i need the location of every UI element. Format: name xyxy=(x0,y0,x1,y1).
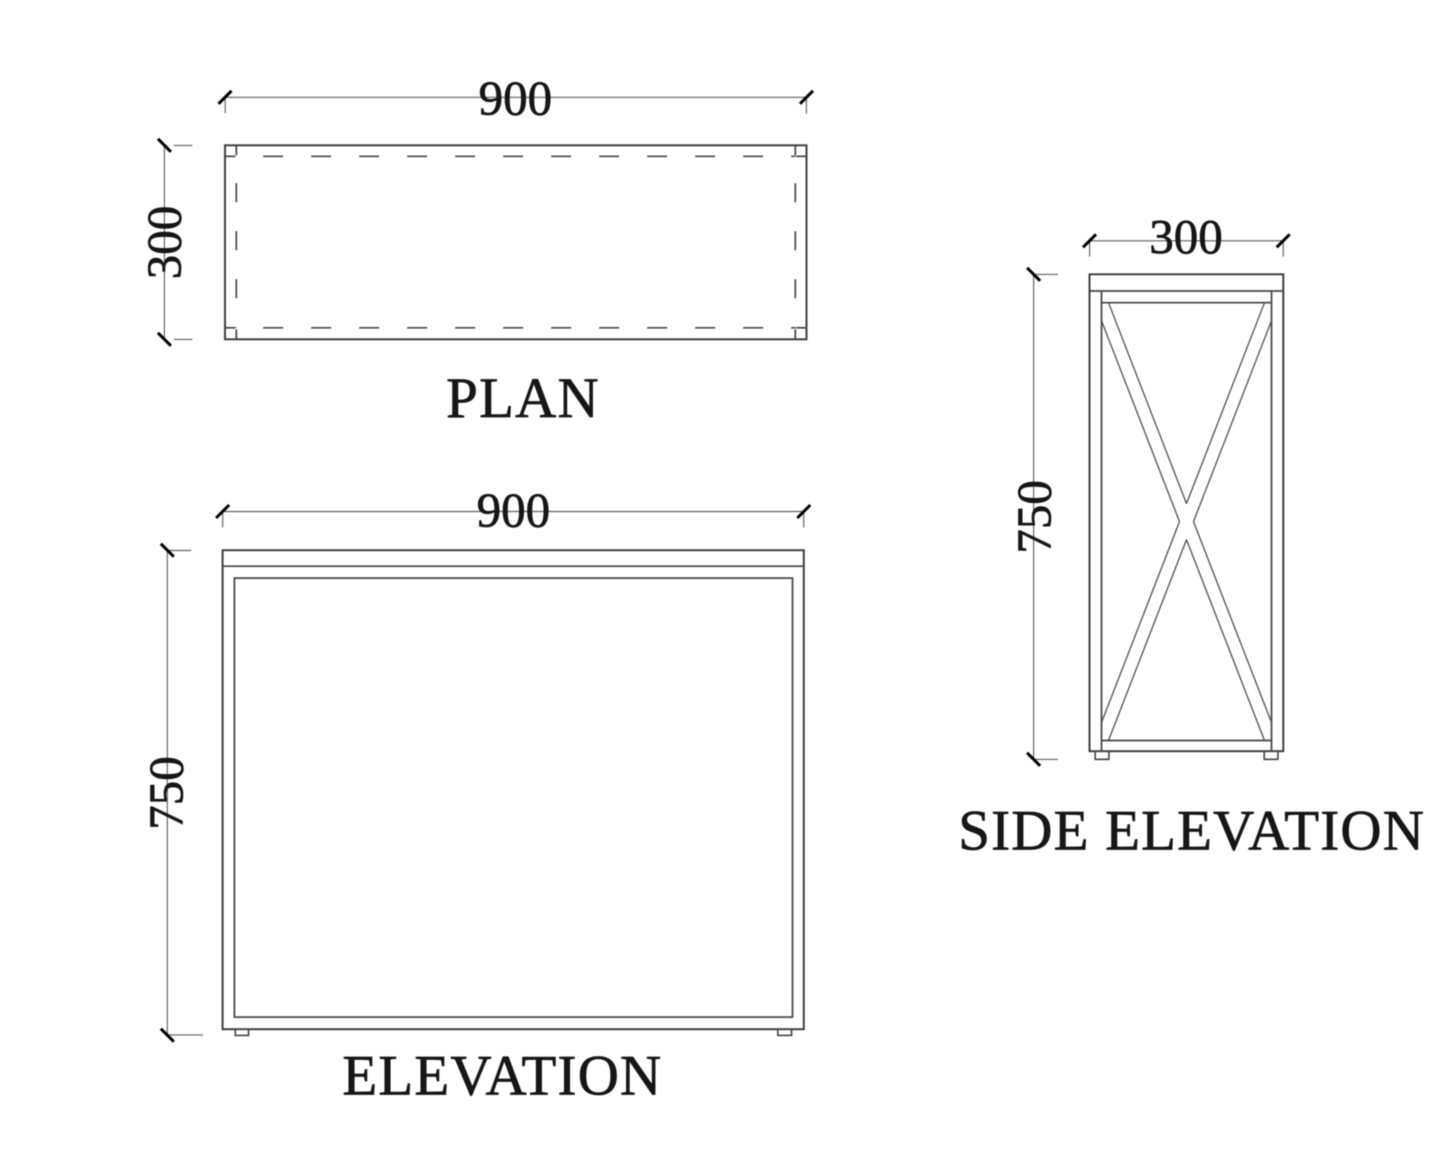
svg-text:750: 750 xyxy=(139,756,194,830)
svg-text:900: 900 xyxy=(479,71,553,126)
svg-text:750: 750 xyxy=(1007,480,1062,554)
svg-text:ELEVATION: ELEVATION xyxy=(342,1045,662,1108)
svg-text:900: 900 xyxy=(477,482,551,537)
svg-text:SIDE ELEVATION: SIDE ELEVATION xyxy=(958,799,1425,862)
svg-text:300: 300 xyxy=(1149,209,1223,264)
svg-text:300: 300 xyxy=(136,206,191,280)
svg-text:PLAN: PLAN xyxy=(446,367,600,430)
